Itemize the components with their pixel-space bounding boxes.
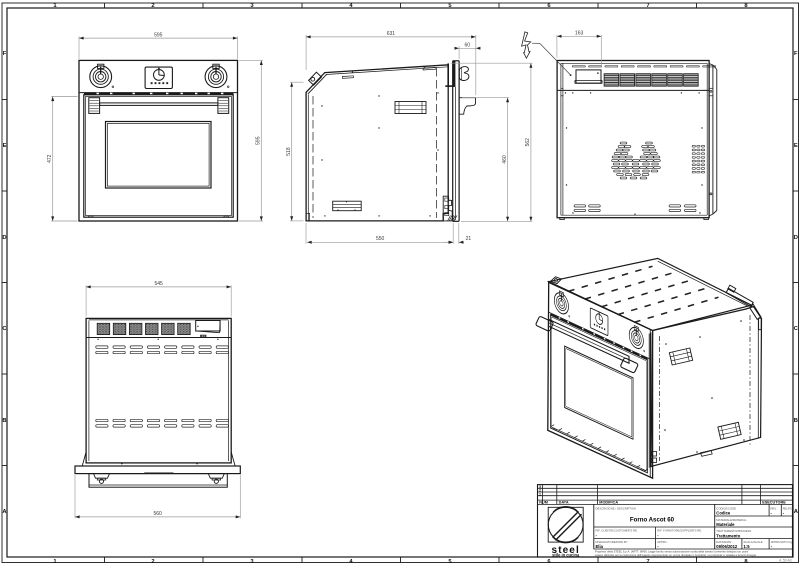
svg-text:D: D xyxy=(794,235,798,241)
svg-text:163: 163 xyxy=(575,31,584,37)
svg-text:Codice: Codice xyxy=(716,510,731,515)
svg-text:562: 562 xyxy=(525,138,531,147)
svg-text:60: 60 xyxy=(465,43,471,49)
svg-text:518: 518 xyxy=(286,147,292,156)
svg-text:Trattamento: Trattamento xyxy=(716,533,740,538)
svg-text:F: F xyxy=(794,51,798,57)
svg-text:09/06/2012: 09/06/2012 xyxy=(716,544,738,549)
svg-text:stile in cucina: stile in cucina xyxy=(552,552,580,557)
svg-text:2: 2 xyxy=(151,3,154,9)
svg-text:APPROVATO Kg: APPROVATO Kg xyxy=(771,540,793,544)
svg-text:21: 21 xyxy=(466,236,472,242)
svg-text:RIF. FORNITORE/SUPPLIER'S RE.: RIF. FORNITORE/SUPPLIER'S RE. xyxy=(657,529,702,533)
svg-text:B: B xyxy=(2,418,6,424)
svg-text:1: 1 xyxy=(539,492,541,496)
svg-text:MODIFICA: MODIFICA xyxy=(599,500,618,504)
svg-text:F: F xyxy=(3,51,7,57)
svg-text:Forno Ascot 60: Forno Ascot 60 xyxy=(630,516,675,523)
svg-text:D: D xyxy=(2,235,6,241)
svg-text:NUM: NUM xyxy=(539,500,548,504)
svg-text:DATA: DATA xyxy=(559,500,569,504)
svg-text:Materiale: Materiale xyxy=(716,522,735,527)
svg-text:essere utilizzato per la costr: essere utilizzato per la costruzione del… xyxy=(595,553,757,557)
svg-text:545: 545 xyxy=(154,281,163,287)
svg-text:ESECUTORE: ESECUTORE xyxy=(762,500,786,504)
svg-text:472: 472 xyxy=(47,154,53,163)
svg-text:560: 560 xyxy=(153,511,162,517)
svg-text:595: 595 xyxy=(256,136,262,145)
svg-text:7: 7 xyxy=(646,559,649,565)
svg-text:550: 550 xyxy=(376,236,385,242)
svg-text:595: 595 xyxy=(154,32,163,38)
svg-text:REL/FOG.: REL/FOG. xyxy=(783,506,795,510)
svg-text:460: 460 xyxy=(502,155,508,164)
svg-text:2: 2 xyxy=(151,559,154,565)
svg-text:RIF. CLIENTE/CUSTOMER'S RE.: RIF. CLIENTE/CUSTOMER'S RE. xyxy=(596,529,638,533)
svg-text:E: E xyxy=(794,143,798,149)
svg-text:631: 631 xyxy=(387,31,396,37)
svg-text:APPR'L.: APPR'L. xyxy=(657,540,668,544)
svg-text:1:5: 1:5 xyxy=(744,544,751,549)
svg-text:A. 50-A3: A. 50-A3 xyxy=(779,558,792,562)
svg-text:DESCRIZIONE / DESCRIPTION: DESCRIZIONE / DESCRIPTION xyxy=(596,506,637,510)
svg-text:B: B xyxy=(794,418,798,424)
svg-text:7: 7 xyxy=(646,3,649,9)
svg-text:Elia: Elia xyxy=(596,544,604,549)
svg-text:E: E xyxy=(3,143,7,149)
